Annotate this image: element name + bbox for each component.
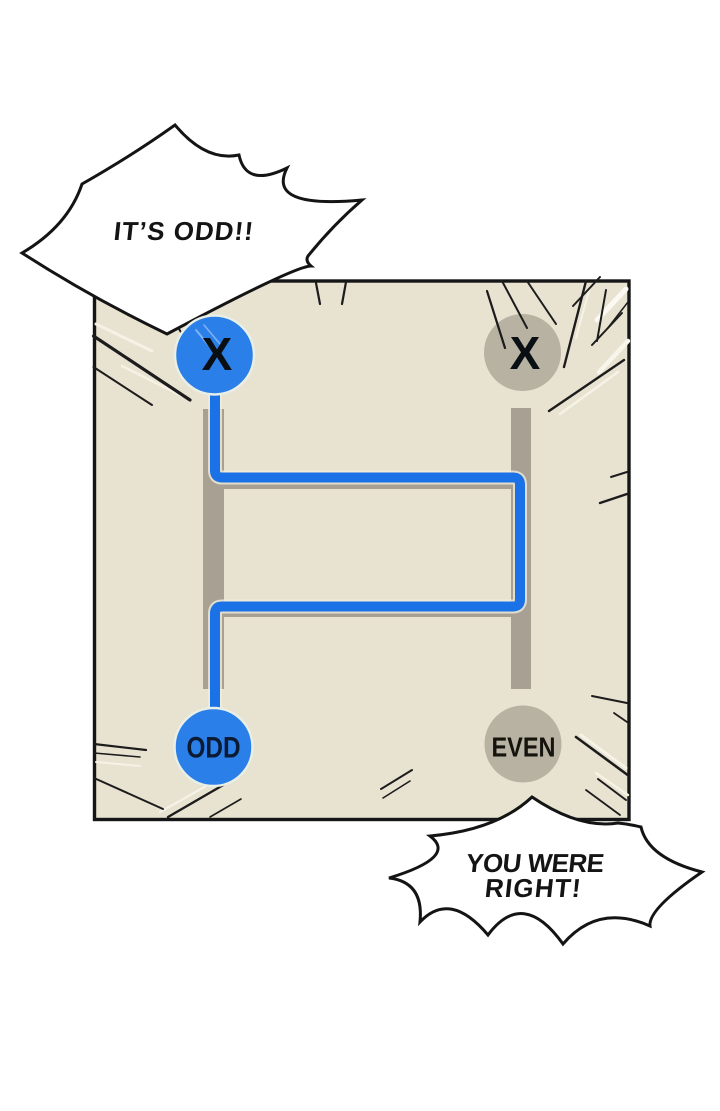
svg-text:EVEN: EVEN <box>492 732 556 763</box>
svg-text:ODD: ODD <box>187 732 241 765</box>
svg-text:IT’S ODD!!: IT’S ODD!! <box>112 216 255 246</box>
svg-text:X: X <box>510 327 541 379</box>
svg-text:RIGHT!: RIGHT! <box>484 873 584 903</box>
svg-text:X: X <box>202 328 233 380</box>
